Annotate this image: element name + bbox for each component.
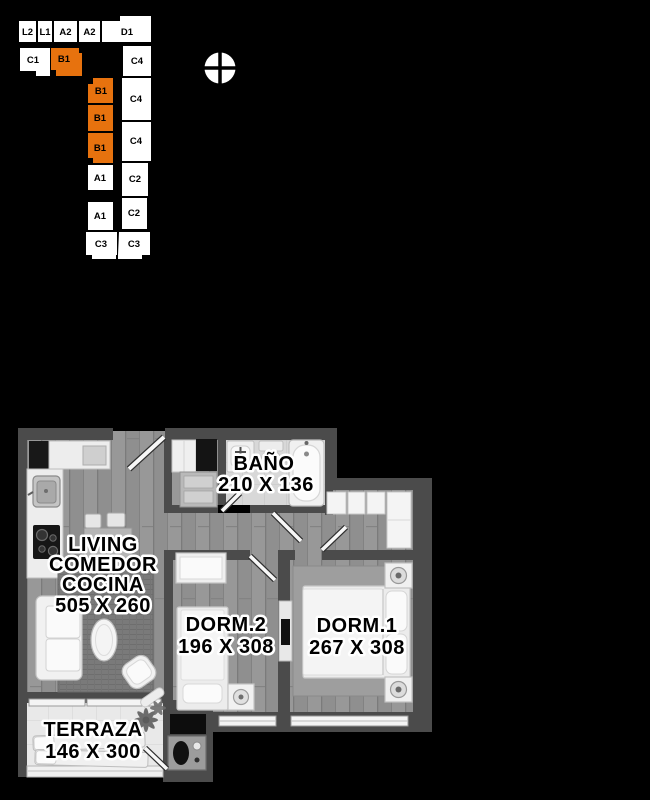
burner [50,535,56,541]
dorm2-nightstand [228,684,254,710]
unit-label: A2 [83,27,95,38]
minimap-unit-a1-1[interactable]: A1 [88,165,113,190]
unit-label: C2 [128,208,140,219]
unit-label: B1 [94,143,107,154]
unit-label: B1 [94,113,107,124]
bath-label: BAÑO [234,452,295,475]
tub-drain [304,452,309,457]
dining-chair [85,514,101,528]
unit-label: A1 [94,211,107,222]
burner [39,546,45,552]
unit-label: L1 [39,27,51,38]
coffee-table [91,619,117,661]
living-label-line3: COCINA [62,574,144,596]
entry-closet-dark [196,439,217,471]
living-terrace-window [29,699,85,706]
unit-label: C4 [130,94,143,105]
living-label-line1: LIVING [68,534,138,556]
unit-label: C2 [129,174,141,185]
living-label-line2: COMEDOR [49,554,157,576]
unit-label: C4 [131,56,144,67]
minimap-unit-a2-2[interactable]: A2 [79,21,100,42]
tub-faucet [305,441,309,445]
dorm1-label: DORM.1 [317,615,398,637]
bbq-niche [168,714,206,770]
dining-chair [107,513,125,527]
minimap-unit-c2-1[interactable]: C2 [122,163,148,196]
minimap-unit-l1[interactable]: L1 [38,21,52,42]
terrace-label: TERRAZA [43,719,142,741]
minimap-unit-l2[interactable]: L2 [19,21,36,42]
minimap-unit-a2-1[interactable]: A2 [54,21,77,42]
unit-label: L2 [22,27,33,38]
apartment-floorplan: BAÑO 210 X 136 LIVING COMEDOR COCINA 505… [18,428,432,782]
closet-panel [367,492,385,514]
unit-label: A2 [59,27,71,38]
unit-label: D1 [121,27,134,38]
unit-label: C3 [95,239,107,250]
minimap-unit-c4-3[interactable]: C4 [122,122,151,161]
dorm1-dims: 267 X 308 [309,637,405,659]
unit-label: B1 [58,54,71,65]
minimap-unit-c4-2[interactable]: C4 [122,78,151,120]
unit-label: C3 [128,239,140,250]
living-dims: 505 X 260 [55,595,151,617]
minimap-unit-c4-1[interactable]: C4 [123,46,151,76]
dorm1-nightstand-top [385,563,412,588]
unit-label: C4 [130,136,143,147]
oven [83,446,106,465]
bed-pillow [183,684,222,703]
floorplan-page: L2 L1 A2 A2 D1 C1 B1 C4 [0,0,650,800]
bath-dims: 210 X 136 [218,474,314,496]
unit-label: A1 [94,173,107,184]
dorm1-nightstand-bottom [385,677,412,702]
minimap-unit-c3-2[interactable]: C3 [118,232,150,259]
burner [37,530,48,541]
terrace-dims: 146 X 300 [45,741,141,763]
unit-label: C1 [27,55,40,66]
closet-panel [348,492,365,514]
unit-label: B1 [95,86,108,97]
sink-drain [44,489,48,493]
fridge [29,441,49,469]
dorm2-dims: 196 X 308 [178,636,274,658]
floorplan-image: L2 L1 A2 A2 D1 C1 B1 C4 [0,0,650,800]
dorm2-label: DORM.2 [186,614,267,636]
minimap-unit-c2-2[interactable]: C2 [122,198,147,229]
minimap-unit-c3-1[interactable]: C3 [86,232,117,259]
closet-panel [327,492,346,514]
minimap-unit-b1-3[interactable]: B1 [88,105,113,131]
minimap-unit-a1-2[interactable]: A1 [88,202,113,230]
compass-icon [205,53,236,84]
wall-tv [279,601,292,661]
storage-box [170,714,206,734]
